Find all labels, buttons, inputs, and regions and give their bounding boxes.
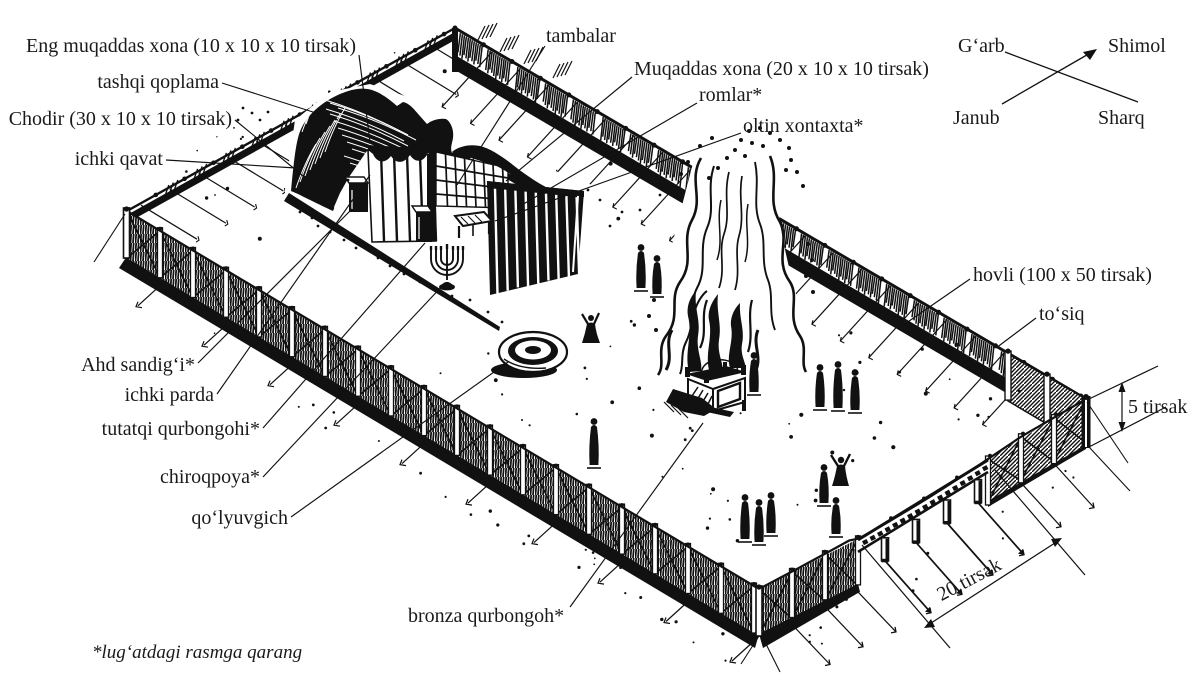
svg-text:tutatqi qurbongohi*: tutatqi qurbongohi* (102, 418, 260, 440)
svg-text:chiroqpoya*: chiroqpoya* (160, 466, 260, 488)
svg-text:qo‘lyuvgich: qo‘lyuvgich (191, 507, 288, 529)
svg-text:*lug‘atdagi rasmga qarang: *lug‘atdagi rasmga qarang (92, 642, 302, 663)
svg-text:ichki parda: ichki parda (125, 384, 215, 406)
svg-text:hovli (100 x 50 tirsak): hovli (100 x 50 tirsak) (973, 264, 1152, 286)
svg-text:Janub: Janub (953, 107, 1000, 129)
svg-text:5 tirsak: 5 tirsak (1128, 396, 1187, 418)
svg-text:romlar*: romlar* (699, 84, 762, 106)
svg-text:Chodir (30 x 10 x 10 tirsak): Chodir (30 x 10 x 10 tirsak) (9, 108, 232, 130)
svg-text:tambalar: tambalar (546, 25, 616, 47)
svg-text:oltin xontaxta*: oltin xontaxta* (743, 115, 864, 137)
svg-text:ichki qavat: ichki qavat (75, 148, 164, 170)
svg-text:Muqaddas xona (20 x 10 x 10 ti: Muqaddas xona (20 x 10 x 10 tirsak) (634, 58, 929, 80)
svg-text:G‘arb: G‘arb (958, 35, 1005, 57)
svg-text:Shimol: Shimol (1108, 35, 1166, 57)
svg-text:bronza qurbongoh*: bronza qurbongoh* (408, 605, 564, 627)
svg-text:Ahd sandig‘i*: Ahd sandig‘i* (81, 354, 195, 376)
svg-text:to‘siq: to‘siq (1039, 303, 1085, 325)
svg-text:Sharq: Sharq (1098, 107, 1145, 129)
svg-text:Eng muqaddas xona (10 x 10 x 1: Eng muqaddas xona (10 x 10 x 10 tirsak) (26, 35, 356, 57)
svg-text:tashqi qoplama: tashqi qoplama (97, 71, 219, 93)
